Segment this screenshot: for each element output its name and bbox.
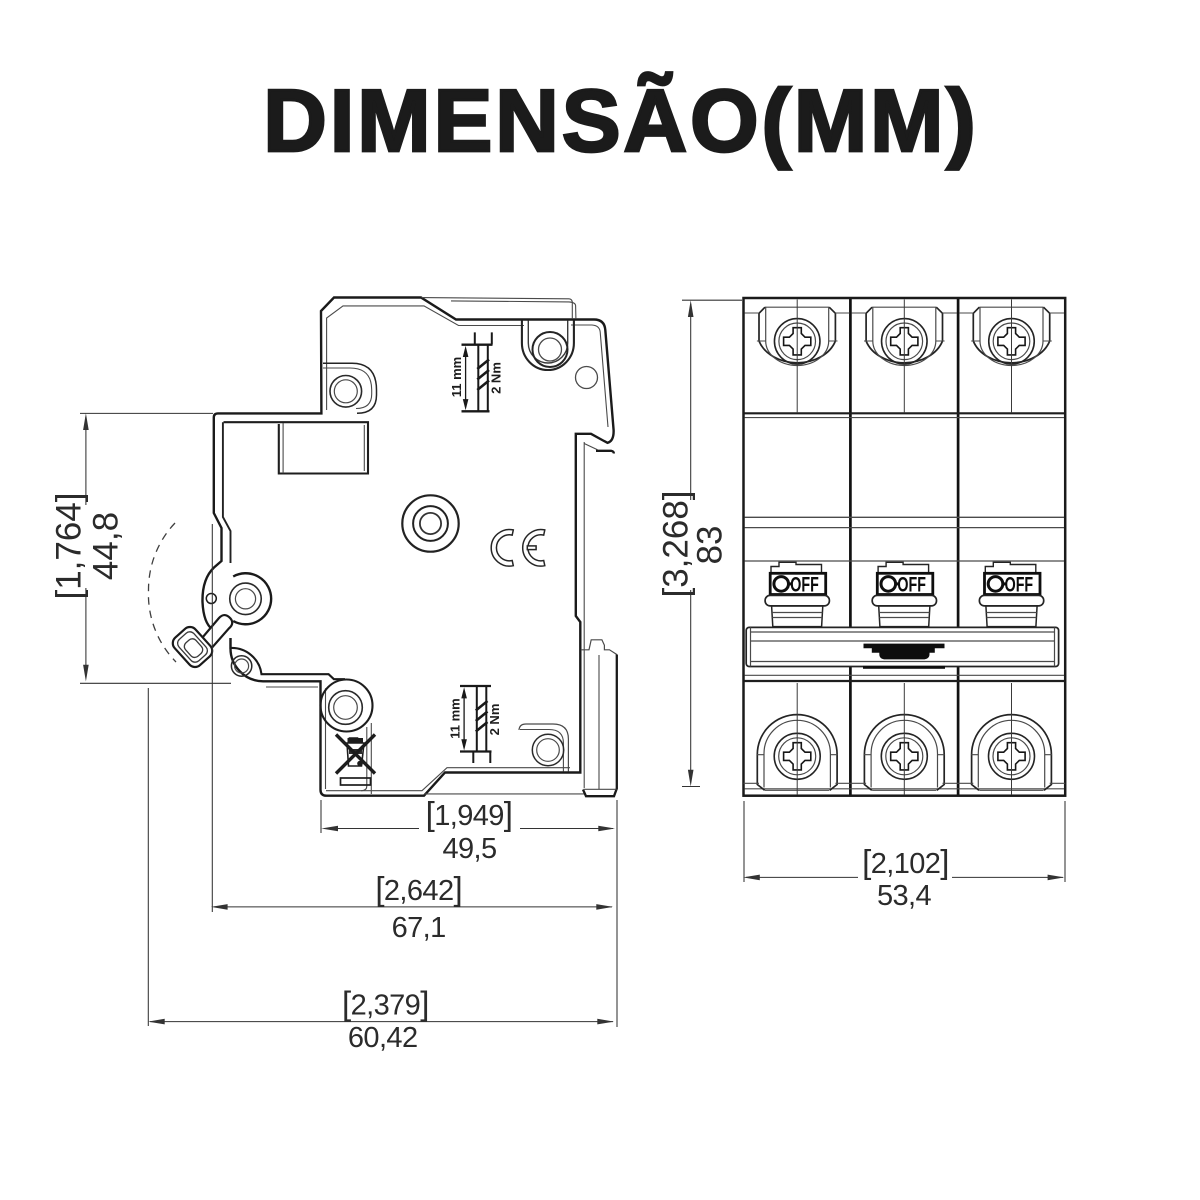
svg-text:[2,102]: [2,102] [862,843,949,880]
svg-text:67,1: 67,1 [392,912,446,944]
svg-text:83: 83 [690,526,729,565]
svg-text:[2,642]: [2,642] [375,870,462,907]
svg-text:44,8: 44,8 [86,512,125,580]
svg-text:60,42: 60,42 [348,1022,418,1054]
svg-text:[1,949]: [1,949] [426,795,513,832]
svg-text:11 mm: 11 mm [449,357,464,397]
svg-text:49,5: 49,5 [442,833,496,865]
svg-text:11 mm: 11 mm [447,698,462,738]
svg-text:2 Nm: 2 Nm [488,362,503,394]
svg-text:[2,379]: [2,379] [342,985,429,1022]
svg-text:[1,764]: [1,764] [49,492,88,599]
svg-text:2 Nm: 2 Nm [487,704,502,736]
svg-text:53,4: 53,4 [877,880,932,912]
